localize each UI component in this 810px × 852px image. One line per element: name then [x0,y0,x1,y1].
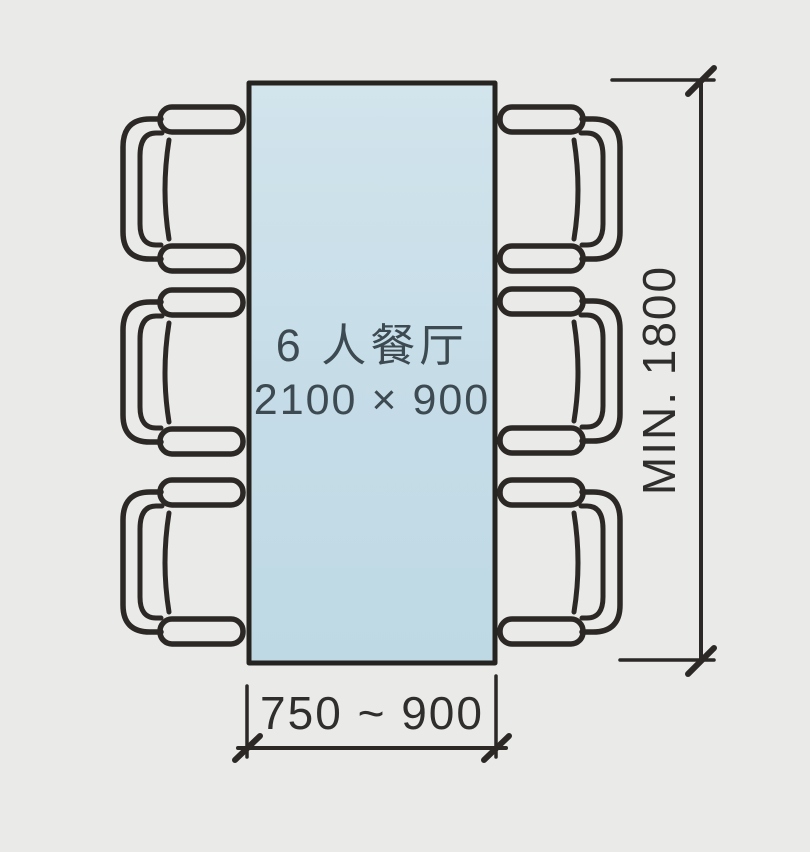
vertical-clearance-label: MIN. 1800 [632,265,686,495]
table-label-title: 6 人餐厅 [249,318,495,374]
chair-right-2 [500,289,620,453]
table-label: 6 人餐厅 2100 × 900 [249,318,495,426]
dining-room-plan: 6 人餐厅 2100 × 900 MIN. 1800 750 ~ 900 [0,0,810,852]
chair-left-3 [123,480,243,644]
chair-right-1 [500,107,620,271]
table-size-label: 2100 × 900 [249,374,495,426]
chair-right-3 [500,480,620,644]
horizontal-clearance-label: 750 ~ 900 [260,686,484,740]
chair-left-2 [123,290,243,454]
chair-left-1 [123,107,243,271]
